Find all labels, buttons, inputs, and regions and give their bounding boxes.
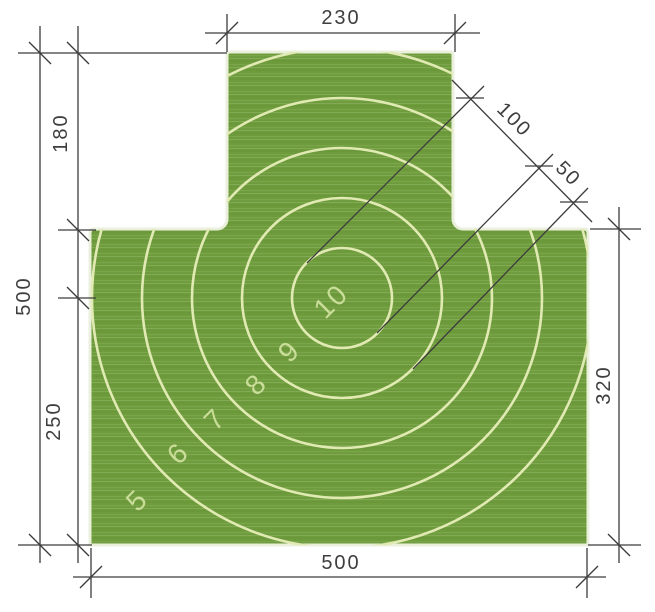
- dimension-label-left-lower: 250: [43, 401, 65, 440]
- dimension-label-top-width: 230: [321, 7, 360, 29]
- dimension-label-left-upper: 180: [50, 113, 72, 152]
- dimension-label-bottom-width: 500: [321, 552, 360, 574]
- target-drawing-canvas: 10 9 8 7 6 5 500 180 250 230: [0, 0, 655, 612]
- target-drawing: 10 9 8 7 6 5 500 180 250 230: [0, 0, 655, 612]
- dimension-label-left-total: 500: [13, 276, 35, 315]
- dimension-label-right-height: 320: [593, 365, 615, 404]
